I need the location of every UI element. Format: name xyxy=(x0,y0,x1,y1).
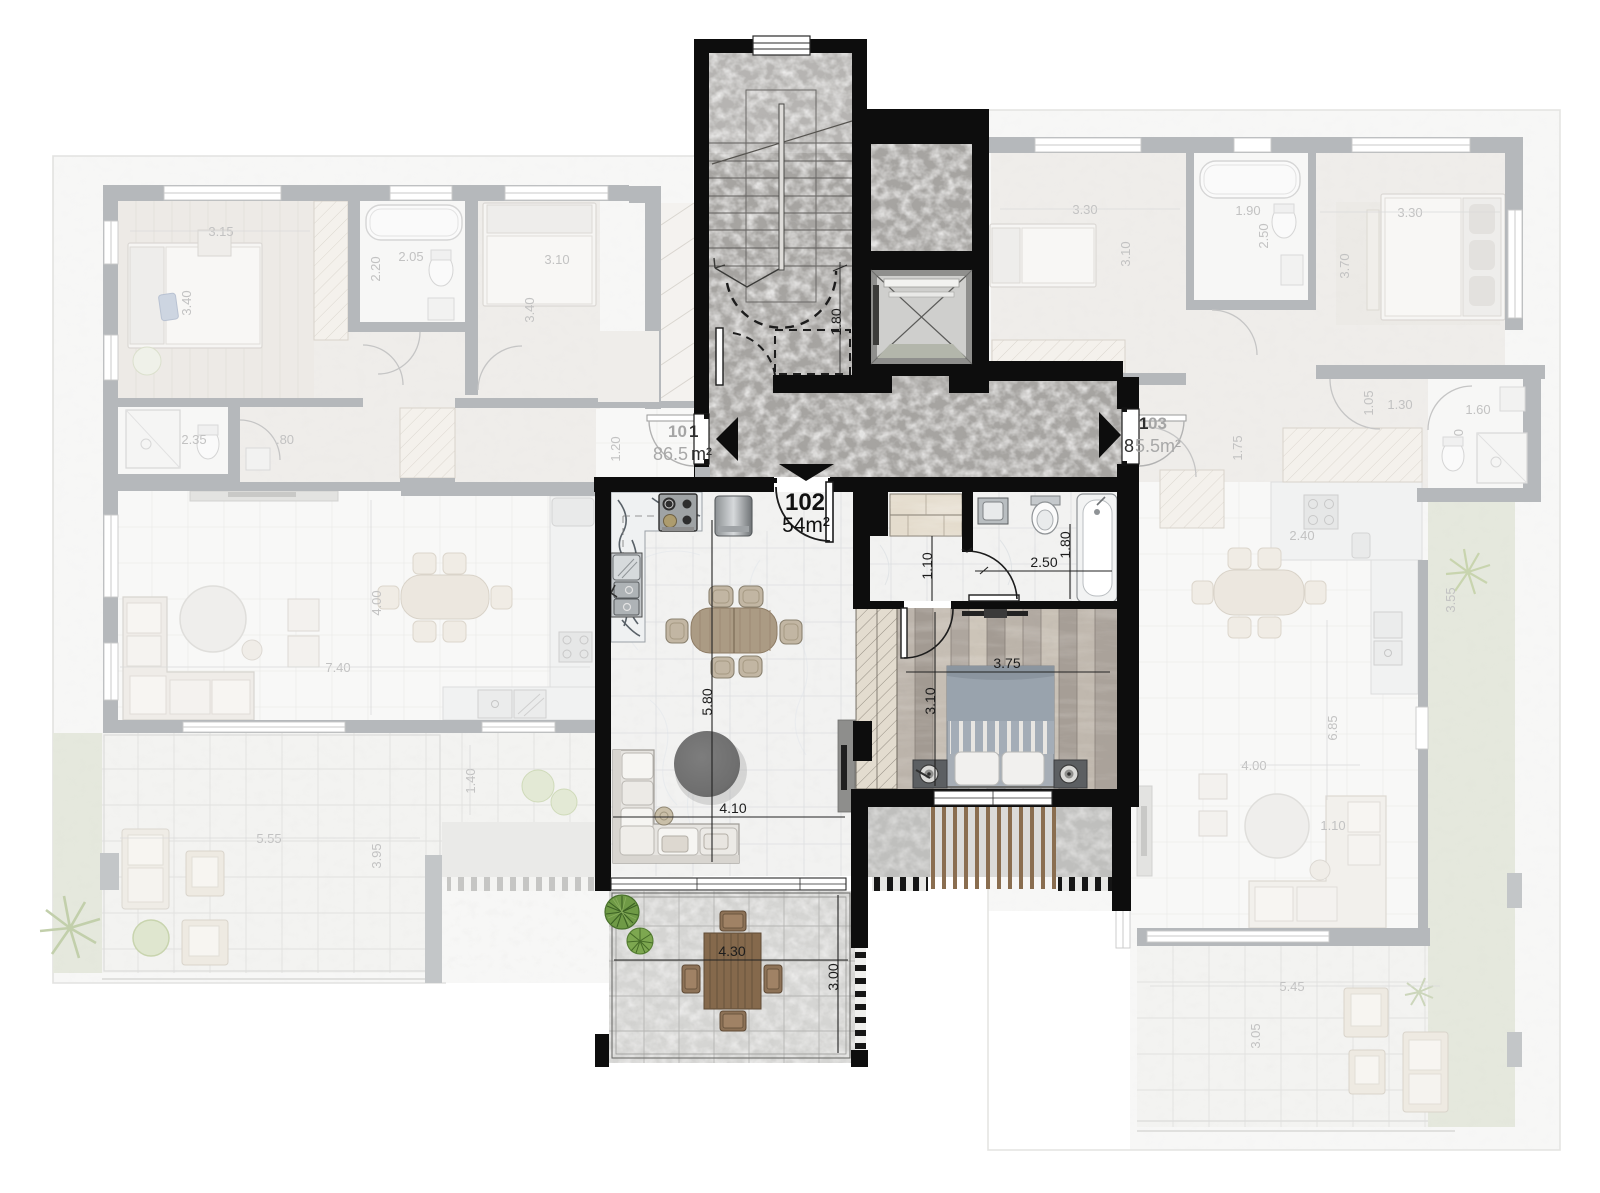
svg-text:1.30: 1.30 xyxy=(1387,397,1412,412)
svg-text:4.00: 4.00 xyxy=(1241,758,1266,773)
svg-text:2.50: 2.50 xyxy=(1256,223,1271,248)
svg-text:102: 102 xyxy=(785,489,825,516)
svg-text:3.00: 3.00 xyxy=(825,963,841,990)
svg-text:10: 10 xyxy=(668,422,687,441)
svg-text:3.30: 3.30 xyxy=(1072,202,1097,217)
svg-text:3.10: 3.10 xyxy=(544,252,569,267)
svg-text:m²: m² xyxy=(691,444,712,464)
svg-text:3.30: 3.30 xyxy=(1397,205,1422,220)
svg-text:3.70: 3.70 xyxy=(1337,253,1352,278)
svg-text:5.5m²: 5.5m² xyxy=(1135,436,1181,456)
svg-text:1.75: 1.75 xyxy=(1230,435,1245,460)
svg-text:03: 03 xyxy=(1148,414,1167,433)
svg-text:1.40: 1.40 xyxy=(463,768,478,793)
svg-text:3.95: 3.95 xyxy=(369,843,384,868)
svg-text:2.35: 2.35 xyxy=(181,432,206,447)
svg-text:2.20: 2.20 xyxy=(368,256,383,281)
svg-text:3.15: 3.15 xyxy=(208,224,233,239)
svg-text:54m²: 54m² xyxy=(782,514,830,537)
svg-text:1.80: 1.80 xyxy=(1057,531,1073,558)
svg-text:86.5: 86.5 xyxy=(653,444,688,464)
svg-text:5.55: 5.55 xyxy=(256,831,281,846)
svg-text:.80: .80 xyxy=(276,432,294,447)
svg-text:4.30: 4.30 xyxy=(718,943,745,959)
svg-text:3.05: 3.05 xyxy=(1248,1023,1263,1048)
svg-text:1.05: 1.05 xyxy=(1361,390,1376,415)
svg-text:2.50: 2.50 xyxy=(1030,554,1057,570)
svg-text:2.40: 2.40 xyxy=(1289,528,1314,543)
svg-text:4.10: 4.10 xyxy=(719,800,746,816)
svg-text:3.75: 3.75 xyxy=(993,655,1020,671)
svg-text:7.40: 7.40 xyxy=(325,660,350,675)
svg-text:1.60: 1.60 xyxy=(1465,402,1490,417)
svg-text:3.55: 3.55 xyxy=(1443,587,1458,612)
svg-text:8: 8 xyxy=(1124,436,1134,456)
svg-text:1.80: 1.80 xyxy=(828,308,844,335)
svg-text:5.80: 5.80 xyxy=(699,688,715,715)
svg-text:3.10: 3.10 xyxy=(922,687,938,714)
svg-text:1.90: 1.90 xyxy=(1235,203,1260,218)
svg-text:3.40: 3.40 xyxy=(179,290,194,315)
svg-text:3.40: 3.40 xyxy=(522,297,537,322)
svg-text:5.45: 5.45 xyxy=(1279,979,1304,994)
svg-text:1: 1 xyxy=(689,422,698,441)
svg-text:3.10: 3.10 xyxy=(1118,241,1133,266)
svg-text:1.10: 1.10 xyxy=(919,552,935,579)
svg-text:2.05: 2.05 xyxy=(398,249,423,264)
svg-text:1.10: 1.10 xyxy=(1320,818,1345,833)
svg-text:1.20: 1.20 xyxy=(608,436,623,461)
